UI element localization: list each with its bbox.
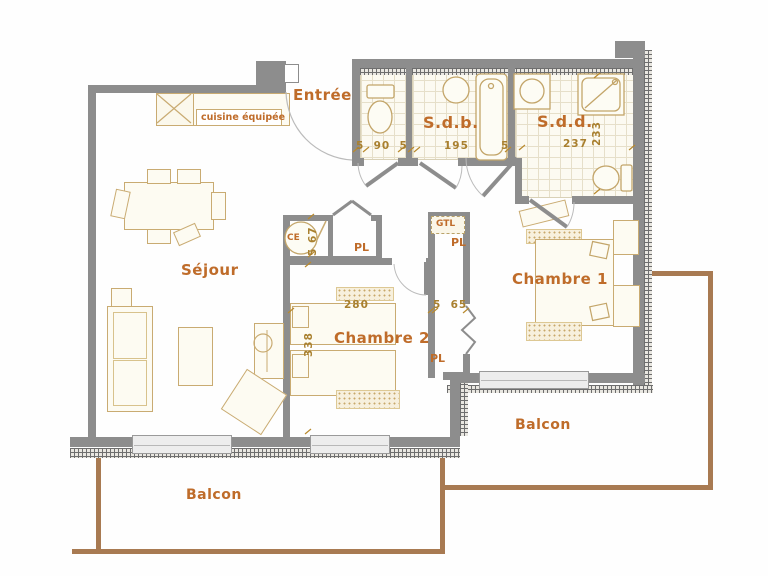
room-label-sdd: S.d.d.: [537, 112, 593, 131]
dim-sdb-right: 5: [501, 140, 509, 152]
balcony-railing: [96, 454, 101, 552]
room-label-chambre2: Chambre 2: [334, 329, 430, 347]
wc-door-arc: [358, 163, 366, 186]
balcony-railing: [440, 485, 713, 490]
dim-pl-width: 5 65: [433, 299, 467, 311]
sofa-cushion: [113, 360, 147, 406]
room-label-sdb: S.d.b.: [423, 113, 479, 132]
balcony-railing: [72, 549, 445, 554]
dim-ce-height: 5 67: [307, 226, 319, 256]
sdd-tile-floor: [515, 68, 635, 198]
window: [132, 435, 232, 454]
wall: [352, 158, 364, 166]
rug: [336, 390, 400, 409]
wall: [515, 196, 529, 204]
wall: [256, 61, 286, 93]
coffee-table: [178, 327, 213, 386]
wall: [463, 354, 470, 378]
dim-sdd-width2: 237: [563, 138, 588, 150]
hatch-band: [352, 68, 633, 75]
pillow: [292, 354, 309, 378]
wall: [283, 215, 333, 221]
dim-wc-width: 5 90 5: [356, 140, 408, 152]
balcony-railing: [651, 271, 711, 276]
pillow: [292, 306, 309, 328]
wall: [450, 378, 460, 438]
wall: [283, 258, 392, 265]
window: [310, 435, 390, 454]
desk: [254, 323, 284, 379]
sdb-door-arc: [456, 166, 462, 188]
folding-door: [462, 306, 475, 354]
wall: [283, 215, 290, 440]
closet-label-pl-hall: PL: [354, 241, 369, 254]
room-label-chambre1: Chambre 1: [512, 270, 608, 288]
dim-ch2-width: 280: [344, 299, 369, 311]
dining-chair: [147, 169, 171, 184]
dim-ch2-height: 338: [303, 332, 315, 357]
sdb-door-leaf: [420, 163, 456, 188]
room-label-entree: Entrée: [293, 86, 352, 104]
room-label-sejour: Séjour: [181, 261, 239, 279]
hatch-band: [644, 50, 652, 385]
nightstand: [613, 285, 640, 327]
hatch-band: [460, 380, 468, 436]
wall: [398, 158, 418, 166]
wall: [352, 59, 637, 68]
wc-door-leaf: [366, 163, 398, 186]
window: [479, 371, 589, 389]
wall: [388, 437, 460, 447]
wall: [458, 158, 520, 166]
kitchen-label-box: cuisine équipée: [196, 109, 282, 126]
kitchen-sink-unit: [156, 93, 194, 126]
wall: [70, 437, 132, 447]
wall: [633, 50, 644, 385]
dim-sdb-width: 195: [444, 140, 469, 152]
wall: [230, 437, 310, 447]
room-label-balcon-right: Balcon: [515, 417, 571, 433]
kitchen-label: cuisine équipée: [201, 112, 285, 123]
wall: [88, 85, 96, 437]
closet-label-ce: CE: [287, 233, 300, 243]
wall: [587, 373, 645, 383]
balcony-railing: [440, 456, 445, 552]
sofa-cushion: [113, 312, 147, 359]
dining-chair: [177, 169, 201, 184]
rug: [526, 322, 582, 341]
closet-label-gtl: GTL: [436, 219, 455, 229]
dining-table: [124, 182, 214, 230]
hatch-band: [70, 448, 460, 458]
dim-sdd-height: 233: [591, 121, 603, 146]
closet-label-pl-lower: PL: [430, 352, 445, 365]
wall: [572, 196, 633, 204]
entry-niche: [284, 64, 299, 83]
room-label-balcon-bottom: Balcon: [186, 487, 242, 503]
chambre2-door-arc: [394, 264, 426, 295]
floor-plan: cuisine équipée: [0, 0, 768, 576]
wall: [88, 85, 263, 93]
balcony-railing: [708, 271, 713, 490]
dining-chair: [147, 229, 171, 244]
nightstand: [613, 220, 639, 255]
dining-chair: [211, 192, 226, 220]
closet-double-door: [333, 201, 371, 215]
closet-label-pl-gtl: PL: [451, 236, 466, 249]
